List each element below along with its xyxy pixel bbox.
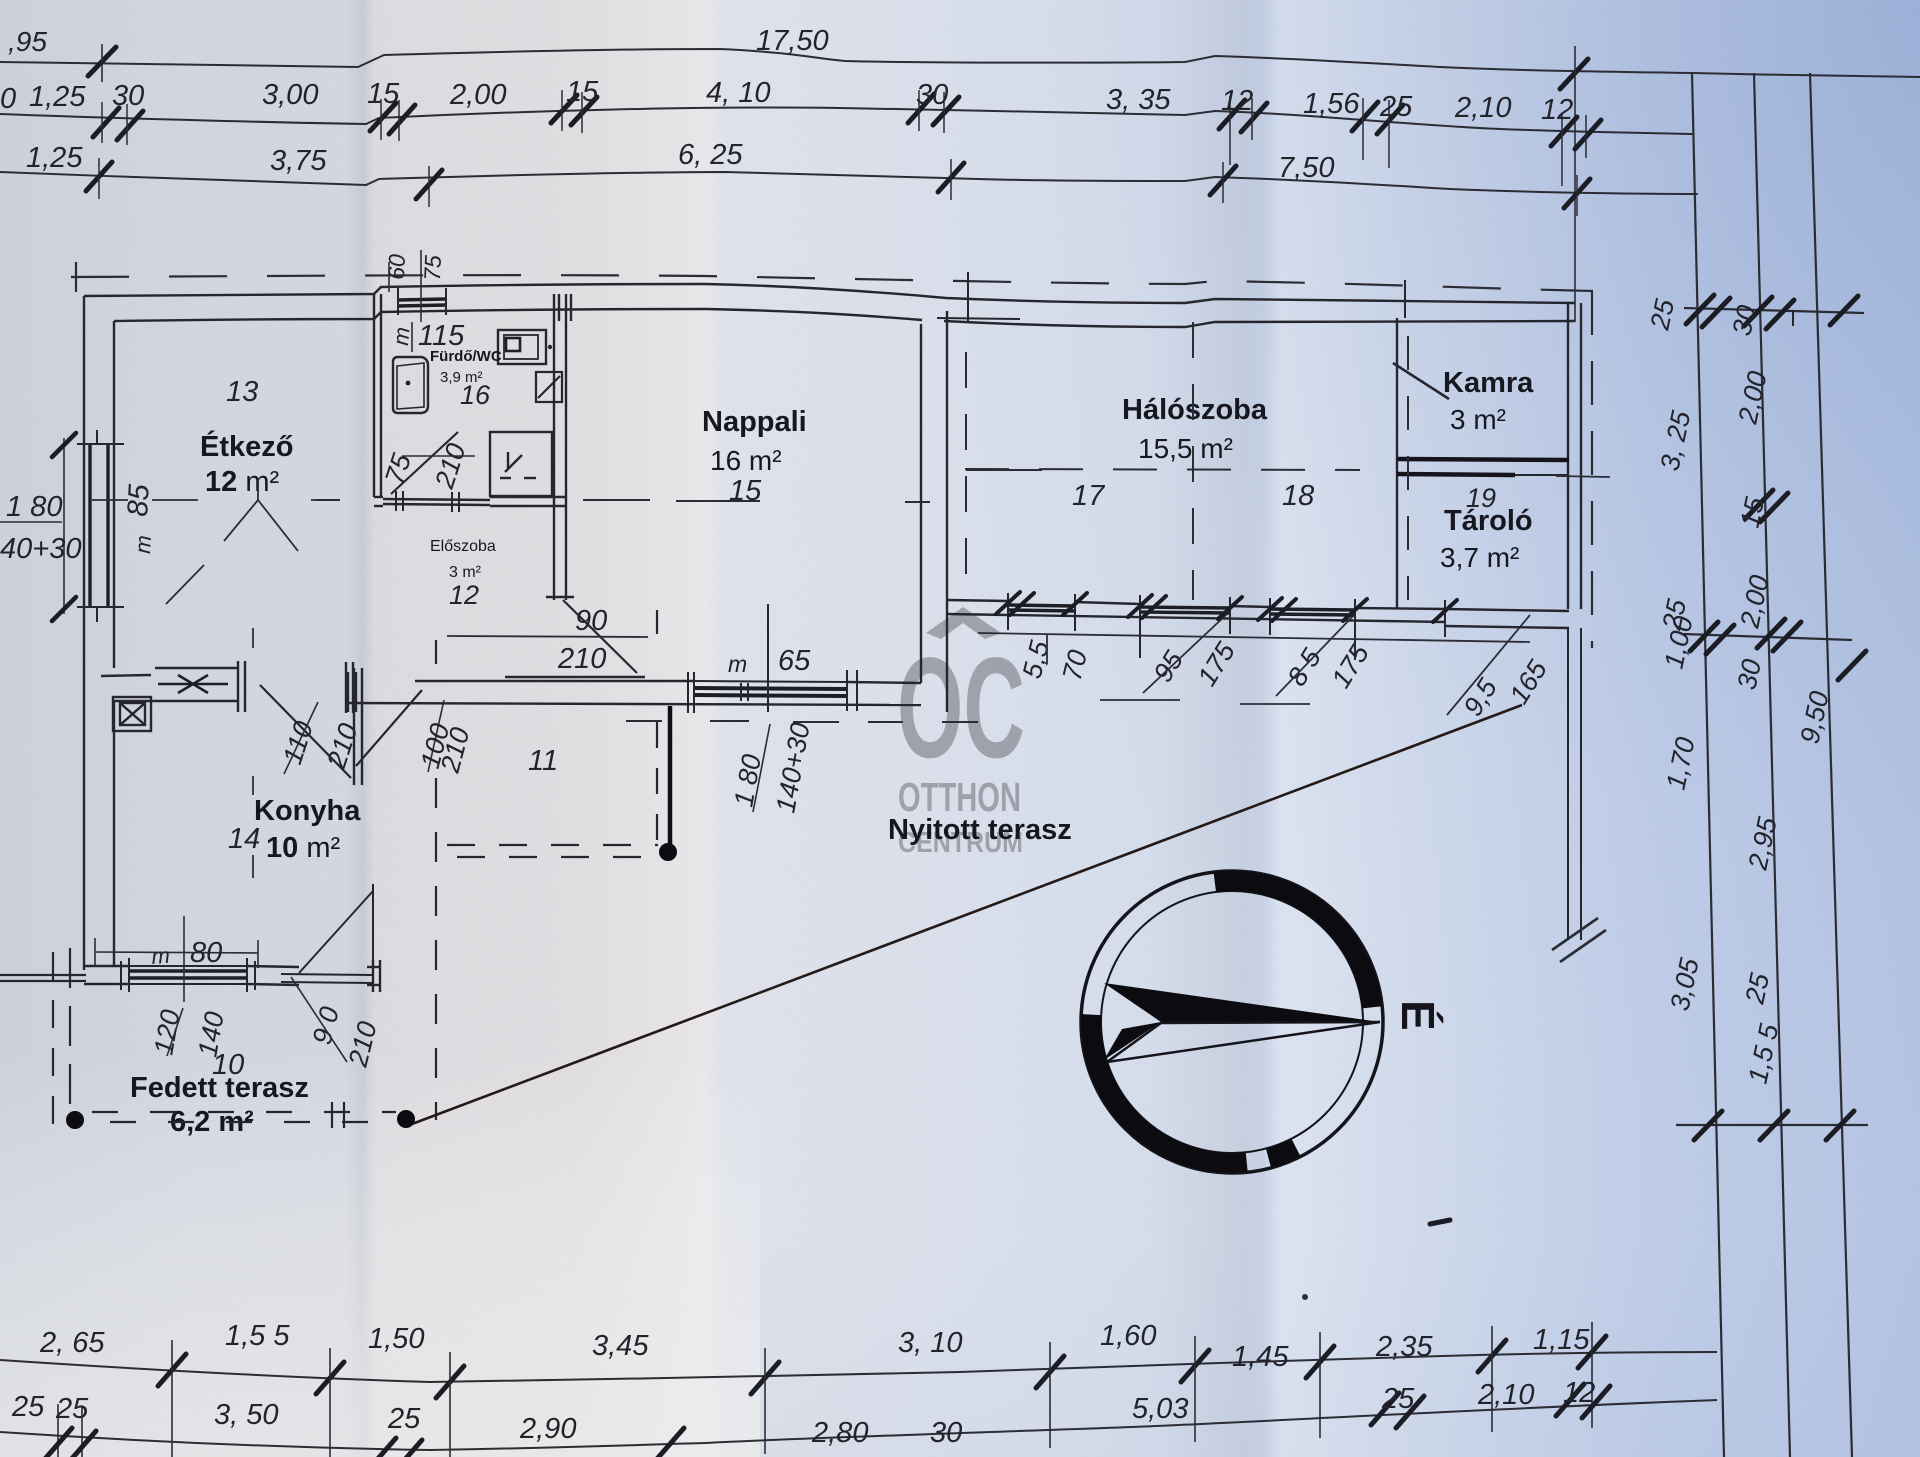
svg-text:Fürdő/WC: Fürdő/WC <box>430 348 502 365</box>
svg-text:25: 25 <box>11 1391 45 1423</box>
svg-text:2,35: 2,35 <box>1375 1331 1433 1363</box>
svg-text:80: 80 <box>190 937 222 969</box>
svg-text:12 m²: 12 m² <box>205 466 279 498</box>
svg-text:12: 12 <box>1221 85 1253 117</box>
svg-text:30: 30 <box>112 80 144 112</box>
svg-text:Konyha: Konyha <box>254 795 361 827</box>
svg-text:210: 210 <box>557 643 606 675</box>
svg-text:3,7 m²: 3,7 m² <box>1440 542 1519 573</box>
svg-text:0: 0 <box>0 83 16 115</box>
svg-text:Fedett terasz: Fedett terasz <box>130 1072 309 1104</box>
svg-text:65: 65 <box>778 645 811 677</box>
svg-text:m: m <box>728 651 747 677</box>
svg-text:Tároló: Tároló <box>1444 505 1533 537</box>
svg-text:90: 90 <box>575 605 607 637</box>
svg-text:17: 17 <box>1072 480 1106 512</box>
svg-text:13: 13 <box>226 376 258 408</box>
svg-text:1,45: 1,45 <box>1232 1341 1289 1373</box>
svg-text:2,10: 2,10 <box>1477 1379 1534 1411</box>
svg-text:3 m²: 3 m² <box>1450 404 1506 435</box>
svg-text:18: 18 <box>1282 480 1314 512</box>
svg-text:m: m <box>151 943 171 969</box>
svg-text:Nappali: Nappali <box>702 406 807 438</box>
svg-text:1,50: 1,50 <box>368 1323 424 1355</box>
svg-text:2,10: 2,10 <box>1454 92 1511 124</box>
svg-text:1,25: 1,25 <box>26 142 83 174</box>
svg-text:1,15: 1,15 <box>1533 1324 1590 1356</box>
svg-text:30: 30 <box>916 79 948 111</box>
svg-text:3,45: 3,45 <box>592 1330 649 1362</box>
svg-text:16: 16 <box>460 380 491 410</box>
svg-text:Kamra: Kamra <box>1443 367 1534 399</box>
svg-text:30: 30 <box>1727 303 1763 339</box>
svg-text:25: 25 <box>55 1393 89 1425</box>
svg-text:16 m²: 16 m² <box>710 445 782 476</box>
svg-text:m: m <box>130 535 156 555</box>
svg-text:2,90: 2,90 <box>519 1413 576 1445</box>
svg-text:17,50: 17,50 <box>756 25 829 57</box>
svg-text:15: 15 <box>729 475 762 507</box>
svg-text:12: 12 <box>449 580 479 610</box>
svg-text:3, 10: 3, 10 <box>898 1327 963 1359</box>
svg-text:30: 30 <box>1732 657 1768 693</box>
svg-text:15,5 m²: 15,5 m² <box>1138 433 1233 464</box>
svg-text:40+30: 40+30 <box>0 533 81 565</box>
svg-text:30: 30 <box>930 1417 962 1449</box>
svg-text:14: 14 <box>228 823 260 855</box>
svg-text:3 m²: 3 m² <box>449 564 482 581</box>
svg-text:2, 65: 2, 65 <box>39 1327 105 1359</box>
svg-text:4, 10: 4, 10 <box>706 77 771 109</box>
svg-text:12: 12 <box>1563 1377 1595 1409</box>
svg-text:10 m²: 10 m² <box>266 832 340 864</box>
svg-text:25: 25 <box>387 1403 421 1435</box>
svg-text:11: 11 <box>528 745 558 777</box>
svg-text:2,80: 2,80 <box>811 1417 868 1449</box>
svg-text:Előszoba: Előszoba <box>430 538 496 555</box>
svg-text:12: 12 <box>1541 94 1573 126</box>
svg-text:1,60: 1,60 <box>1100 1320 1156 1352</box>
svg-text:7,50: 7,50 <box>1278 152 1334 184</box>
svg-text:Nyitott terasz: Nyitott terasz <box>888 814 1072 846</box>
svg-text:1,56: 1,56 <box>1303 88 1360 120</box>
svg-text:m: m <box>388 326 415 346</box>
svg-text:1,25: 1,25 <box>29 81 86 113</box>
svg-text:1 80: 1 80 <box>6 491 62 523</box>
svg-text:25: 25 <box>1379 91 1413 123</box>
svg-text:3,75: 3,75 <box>270 145 327 177</box>
svg-text:25: 25 <box>1381 1383 1415 1415</box>
svg-text:Hálószoba: Hálószoba <box>1122 394 1268 426</box>
svg-text:6, 25: 6, 25 <box>678 139 743 171</box>
svg-text:OC: OC <box>897 629 1025 788</box>
svg-text:3, 50: 3, 50 <box>214 1399 279 1431</box>
svg-text:5,03: 5,03 <box>1132 1393 1188 1425</box>
svg-text:60: 60 <box>383 253 410 280</box>
svg-text:É: É <box>1392 1000 1444 1031</box>
svg-text:,95: ,95 <box>8 26 47 57</box>
svg-text:Étkező: Étkező <box>200 429 293 463</box>
svg-text:15: 15 <box>367 78 400 110</box>
svg-text:15: 15 <box>566 76 599 108</box>
svg-text:3, 35: 3, 35 <box>1106 84 1171 116</box>
svg-text:75: 75 <box>419 254 446 281</box>
svg-text:2,00: 2,00 <box>449 79 506 111</box>
svg-text:1,5 5: 1,5 5 <box>225 1320 290 1352</box>
svg-text:3,00: 3,00 <box>262 79 318 111</box>
